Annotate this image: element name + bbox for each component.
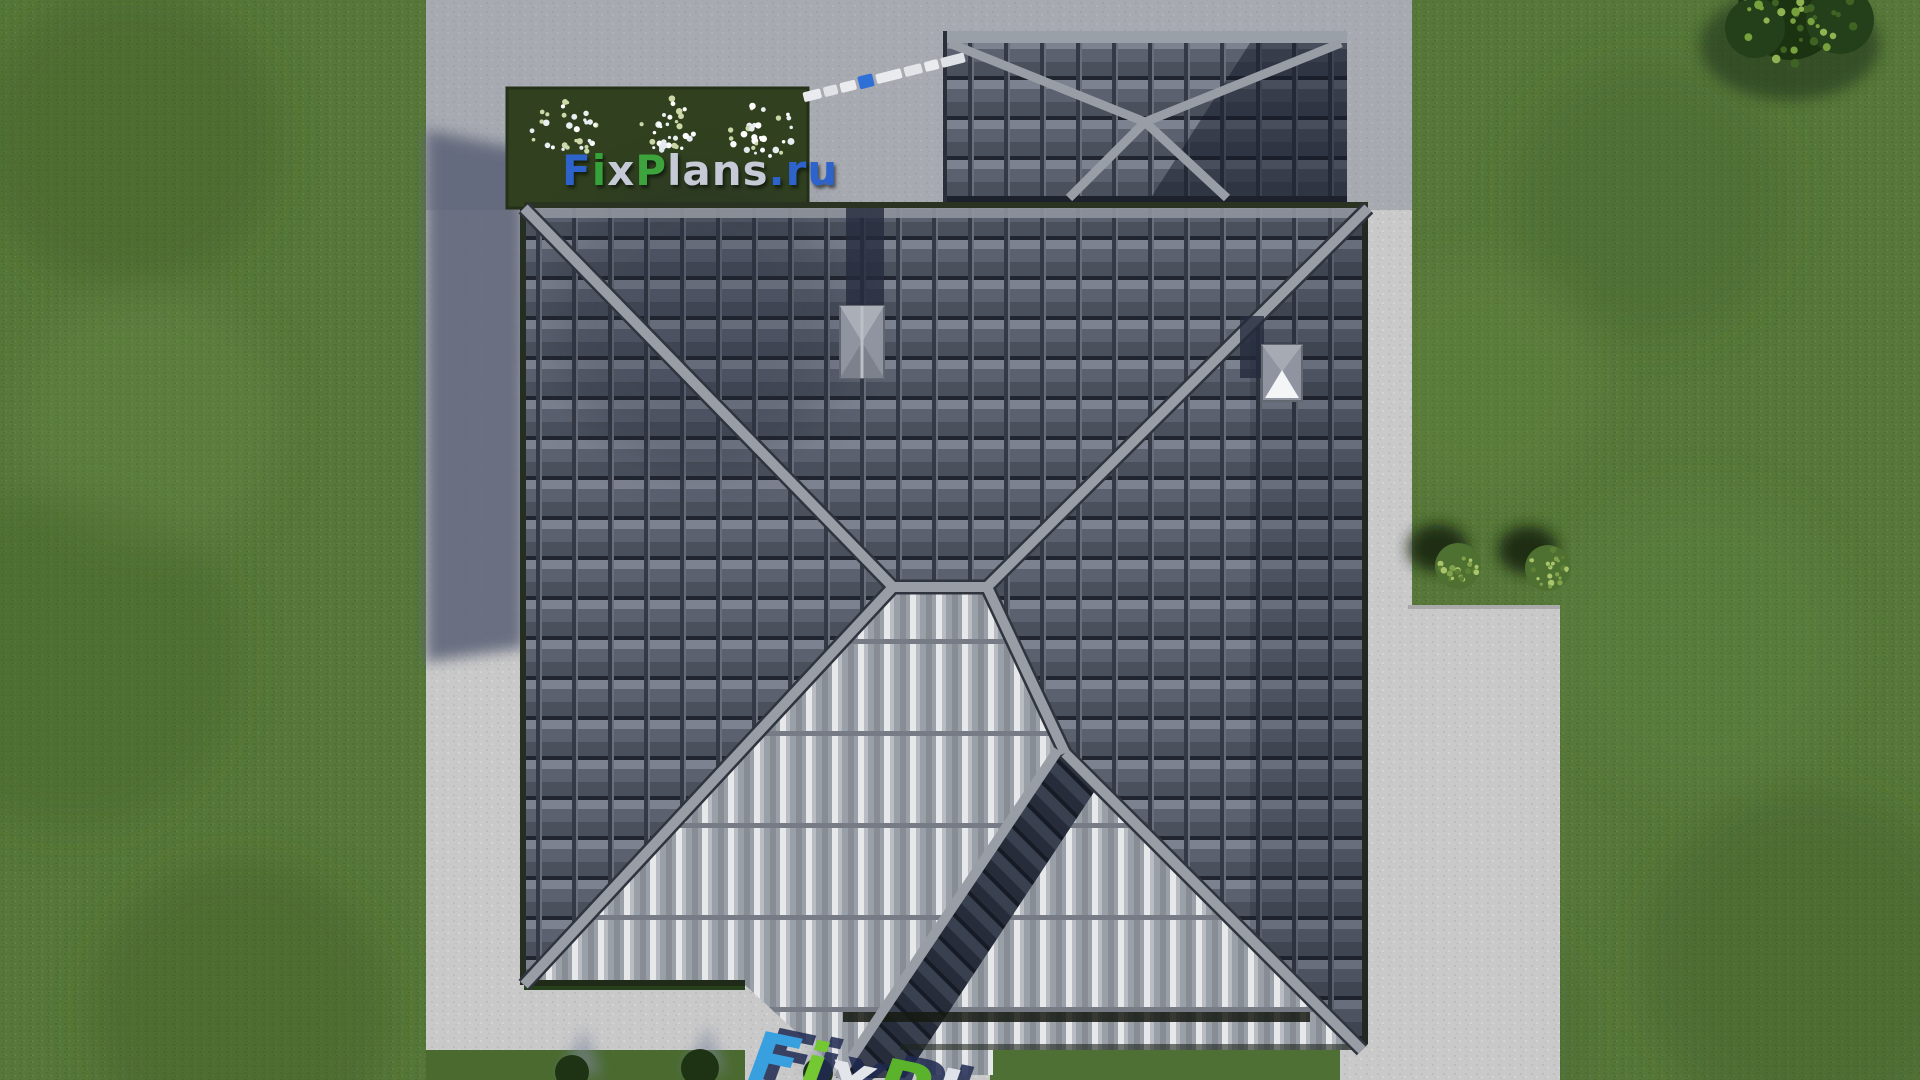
eave-gutter — [843, 1012, 1310, 1022]
pad-shadow-left — [426, 130, 524, 662]
rear-roof-wing — [943, 31, 1347, 202]
ridge-cap — [524, 208, 1368, 218]
scene-canvas — [0, 0, 1920, 1080]
main-roof — [520, 170, 1368, 1078]
chimney-2 — [1262, 345, 1302, 401]
path-edge-line — [1408, 605, 1560, 609]
aerial-roof-render: FixPlans.ru FixPlans.ru — [0, 0, 1920, 1080]
roof-edge — [520, 208, 526, 985]
watermark-logo: FixPlans.ru — [562, 150, 838, 192]
chimney-shadow — [1240, 316, 1264, 378]
ridge-cap — [943, 31, 1347, 43]
chimney-1 — [840, 306, 884, 378]
chimney-shadow — [846, 208, 884, 308]
roof-edge — [1362, 208, 1368, 1044]
